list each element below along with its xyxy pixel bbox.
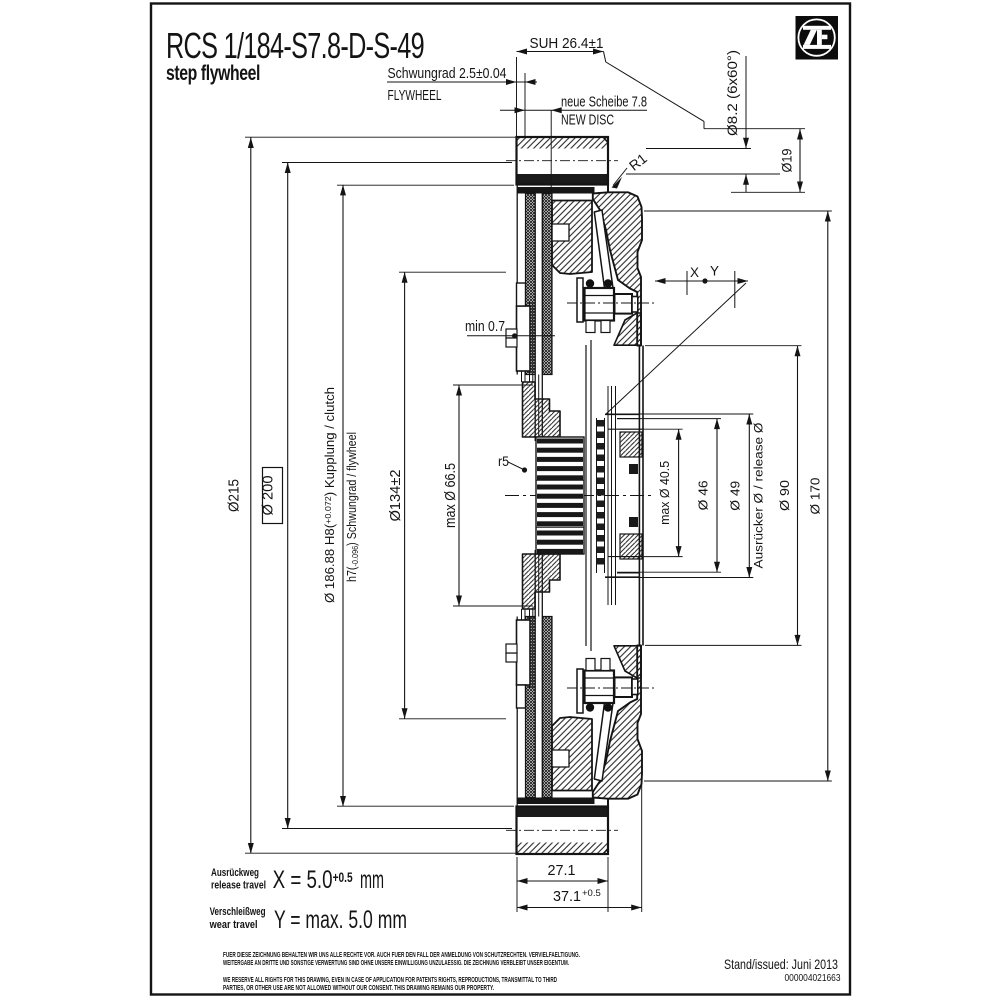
svg-text:Ausrücker Ø / release Ø: Ausrücker Ø / release Ø: [752, 422, 766, 568]
svg-text:Ø 49: Ø 49: [728, 481, 743, 511]
svg-text:Ø 170: Ø 170: [808, 478, 823, 515]
svg-text:SUH 26.4±1: SUH 26.4±1: [530, 36, 604, 52]
svg-text:step flywheel: step flywheel: [166, 62, 260, 85]
svg-text:r5: r5: [498, 454, 509, 469]
svg-text:min 0.7: min 0.7: [465, 319, 505, 335]
svg-text:Ø19: Ø19: [780, 149, 795, 173]
svg-text:Ø8.2 (6x60°): Ø8.2 (6x60°): [725, 50, 740, 136]
svg-text:Verschleißweg: Verschleißweg: [210, 906, 266, 918]
svg-text:mm: mm: [360, 866, 384, 894]
svg-text:wear travel: wear travel: [209, 919, 258, 931]
svg-text:37.1: 37.1: [553, 889, 581, 905]
svg-text:neue Scheibe 7.8: neue Scheibe 7.8: [561, 94, 647, 111]
svg-text:Ø134±2: Ø134±2: [388, 470, 404, 522]
svg-text:Ø 186.88 H8(+0.072) Kupplung /: Ø 186.88 H8(+0.072) Kupplung / clutch: [323, 387, 337, 603]
svg-text:max Ø 40.5: max Ø 40.5: [657, 461, 672, 525]
svg-text:+0.5: +0.5: [582, 888, 601, 899]
svg-text:max Ø 66.5: max Ø 66.5: [443, 463, 459, 528]
svg-text:000004021663: 000004021663: [785, 972, 841, 984]
svg-text:Y = max. 5.0 mm: Y = max. 5.0 mm: [274, 906, 407, 934]
svg-text:Y: Y: [710, 264, 719, 279]
svg-text:WEITERGABE AN DRITTE UND SONST: WEITERGABE AN DRITTE UND SONSTIGE VERWER…: [223, 958, 569, 967]
svg-text:FLYWHEEL: FLYWHEEL: [388, 87, 442, 104]
svg-text:Ausrückweg: Ausrückweg: [211, 867, 259, 879]
svg-text:Ø 46: Ø 46: [696, 480, 711, 510]
svg-text:Ø 90: Ø 90: [777, 480, 792, 511]
svg-text:RCS 1/184-S7.8-D-S-49: RCS 1/184-S7.8-D-S-49: [166, 25, 424, 66]
svg-text:Schwungrad 2.5±0.04: Schwungrad 2.5±0.04: [388, 65, 507, 82]
svg-text:X: X: [690, 265, 699, 280]
svg-text:NEW DISC: NEW DISC: [561, 112, 614, 129]
svg-text:27.1: 27.1: [548, 863, 576, 879]
svg-text:PARTIES, OR OTHER USE ARE NOT: PARTIES, OR OTHER USE ARE NOT ALLOWED WI…: [223, 983, 494, 992]
svg-text:Ø215: Ø215: [227, 479, 243, 512]
svg-text:Stand/issued: Juni 2013: Stand/issued: Juni 2013: [724, 956, 838, 972]
svg-text:release travel: release travel: [211, 880, 266, 892]
